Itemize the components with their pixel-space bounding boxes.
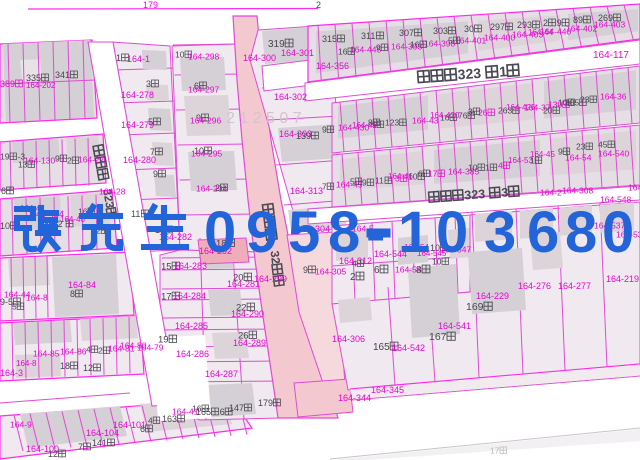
svg-text:315: 315 [322, 34, 337, 44]
svg-text:9: 9 [362, 178, 367, 188]
svg-text:139: 139 [296, 131, 311, 141]
svg-text:307: 307 [399, 28, 414, 38]
svg-text:12: 12 [48, 449, 58, 459]
svg-text:23: 23 [576, 142, 586, 152]
svg-text:19: 19 [0, 152, 10, 162]
svg-text:164-9: 164-9 [10, 420, 32, 430]
svg-text:4: 4 [148, 416, 153, 426]
svg-text:164-27: 164-27 [78, 155, 105, 165]
svg-text:164-219: 164-219 [606, 274, 639, 284]
svg-text:5: 5 [12, 302, 17, 312]
svg-text:164-305: 164-305 [315, 267, 346, 277]
svg-text:164-426: 164-426 [506, 103, 536, 112]
svg-text:164-290: 164-290 [231, 309, 264, 319]
svg-text:2: 2 [67, 156, 72, 166]
svg-text:2: 2 [350, 272, 356, 283]
svg-text:164-540: 164-540 [598, 149, 629, 159]
svg-text:8: 8 [70, 289, 75, 299]
svg-text:297: 297 [490, 22, 505, 32]
svg-text:5: 5 [148, 117, 153, 127]
svg-text:164-276: 164-276 [518, 281, 551, 291]
svg-text:164-308: 164-308 [562, 186, 593, 196]
svg-text:164-400: 164-400 [484, 33, 515, 43]
svg-text:164-294: 164-294 [196, 184, 227, 194]
svg-text:164-287: 164-287 [205, 369, 238, 379]
svg-text:303: 303 [433, 26, 448, 36]
svg-text:10: 10 [0, 221, 10, 231]
svg-text:164-542: 164-542 [392, 343, 425, 353]
svg-text:9: 9 [303, 265, 308, 275]
svg-text:164-297: 164-297 [188, 85, 219, 95]
svg-text:164-2: 164-2 [540, 188, 562, 198]
svg-text:164-278: 164-278 [121, 90, 154, 100]
svg-text:1: 1 [485, 163, 490, 173]
svg-text:164-344: 164-344 [338, 393, 371, 403]
svg-text:164-313: 164-313 [290, 186, 323, 196]
svg-text:13: 13 [18, 160, 28, 170]
svg-text:169: 169 [466, 301, 484, 313]
svg-text:165: 165 [373, 342, 390, 353]
svg-text:164-117: 164-117 [593, 50, 629, 61]
svg-text:4: 4 [86, 345, 91, 355]
svg-text:164-202: 164-202 [26, 81, 56, 90]
svg-text:164-541: 164-541 [438, 321, 471, 331]
svg-text:179: 179 [143, 0, 158, 10]
svg-text:30: 30 [464, 24, 474, 34]
svg-text:311: 311 [361, 31, 375, 41]
svg-text:3: 3 [501, 185, 509, 199]
svg-text:164-28: 164-28 [99, 187, 126, 197]
svg-text:16: 16 [410, 40, 420, 50]
svg-text:164-298: 164-298 [188, 52, 219, 62]
svg-text:164-281: 164-281 [227, 279, 260, 289]
svg-text:2: 2 [316, 0, 321, 10]
svg-text:164-1: 164-1 [127, 54, 150, 64]
svg-text:3: 3 [146, 79, 151, 89]
svg-text:179: 179 [258, 398, 273, 408]
svg-text:164-85: 164-85 [33, 349, 60, 359]
svg-text:164-8: 164-8 [26, 293, 48, 303]
svg-text:2: 2 [98, 346, 103, 356]
svg-text:17: 17 [161, 291, 172, 302]
svg-text:18: 18 [60, 361, 70, 371]
svg-text:6: 6 [1, 186, 6, 196]
svg-text:164-302: 164-302 [274, 92, 307, 102]
svg-text:164-44: 164-44 [528, 28, 553, 37]
svg-text:164-86: 164-86 [60, 347, 87, 357]
svg-text:7: 7 [78, 442, 83, 452]
svg-text:16: 16 [192, 404, 202, 414]
svg-text:341: 341 [55, 70, 70, 80]
svg-text:23: 23 [580, 95, 590, 105]
svg-text:8: 8 [416, 265, 422, 276]
svg-text:164-46: 164-46 [388, 172, 413, 181]
svg-text:164-3: 164-3 [0, 368, 23, 378]
svg-text:164-306: 164-306 [332, 334, 365, 344]
svg-text:164-356: 164-356 [316, 61, 349, 71]
svg-text:164-295: 164-295 [191, 149, 222, 159]
svg-text:141: 141 [92, 438, 107, 448]
svg-text:164-403: 164-403 [594, 20, 625, 30]
svg-text:9: 9 [376, 43, 381, 53]
svg-text:164-300: 164-300 [243, 53, 276, 63]
svg-text:12: 12 [83, 363, 93, 373]
svg-text:164-54: 164-54 [628, 183, 640, 193]
svg-text:1: 1 [116, 53, 121, 63]
svg-text:6: 6 [140, 424, 145, 434]
svg-text:164-284: 164-284 [173, 291, 206, 301]
svg-text:16: 16 [338, 47, 348, 57]
svg-text:164-289: 164-289 [233, 338, 266, 348]
svg-text:7: 7 [150, 147, 155, 157]
svg-text:6: 6 [418, 169, 423, 179]
svg-text:9: 9 [558, 147, 563, 157]
svg-text:17: 17 [490, 446, 500, 456]
svg-text:10: 10 [175, 50, 185, 60]
svg-text:164-283: 164-283 [174, 261, 207, 271]
svg-text:164-54: 164-54 [565, 153, 592, 163]
svg-text:164-277: 164-277 [558, 281, 591, 291]
svg-text:1: 1 [530, 156, 535, 166]
svg-text:164-296: 164-296 [190, 116, 221, 126]
svg-text:9: 9 [322, 125, 327, 135]
svg-text:4: 4 [498, 161, 503, 171]
svg-text:147: 147 [229, 403, 244, 413]
svg-text:5: 5 [350, 177, 355, 187]
svg-text:9: 9 [153, 169, 158, 179]
svg-text:6: 6 [220, 407, 225, 417]
svg-text:10: 10 [468, 163, 478, 173]
svg-text:164-36: 164-36 [600, 92, 627, 102]
svg-text:123: 123 [385, 118, 399, 128]
svg-text:11: 11 [375, 176, 384, 186]
svg-text:167: 167 [429, 331, 447, 343]
svg-text:2: 2 [215, 183, 220, 193]
svg-text:5: 5 [448, 36, 453, 46]
svg-text:2 1 2 5 0 7: 2 1 2 5 0 7 [226, 110, 302, 127]
svg-text:9: 9 [55, 154, 60, 164]
svg-text:11: 11 [131, 209, 140, 219]
svg-text:10: 10 [558, 98, 568, 108]
svg-text:389: 389 [0, 79, 15, 89]
svg-text:76: 76 [458, 111, 468, 121]
svg-text:20: 20 [543, 106, 553, 116]
svg-text:0958-103680: 0958-103680 [204, 200, 634, 265]
svg-text:164-8: 164-8 [16, 359, 37, 368]
svg-text:164-301: 164-301 [281, 48, 314, 58]
svg-text:8: 8 [368, 118, 373, 128]
svg-text:3: 3 [468, 107, 473, 117]
svg-text:164-286: 164-286 [176, 349, 209, 359]
svg-text:164-345: 164-345 [371, 385, 404, 395]
svg-text:164-285: 164-285 [175, 321, 208, 331]
svg-text:19: 19 [158, 334, 169, 345]
svg-text:164-420: 164-420 [430, 111, 460, 120]
svg-text:323: 323 [457, 65, 482, 83]
svg-text:164-229: 164-229 [476, 291, 509, 301]
svg-text:15: 15 [161, 261, 172, 272]
svg-text:164-402: 164-402 [566, 24, 597, 34]
svg-text:6: 6 [374, 265, 380, 276]
